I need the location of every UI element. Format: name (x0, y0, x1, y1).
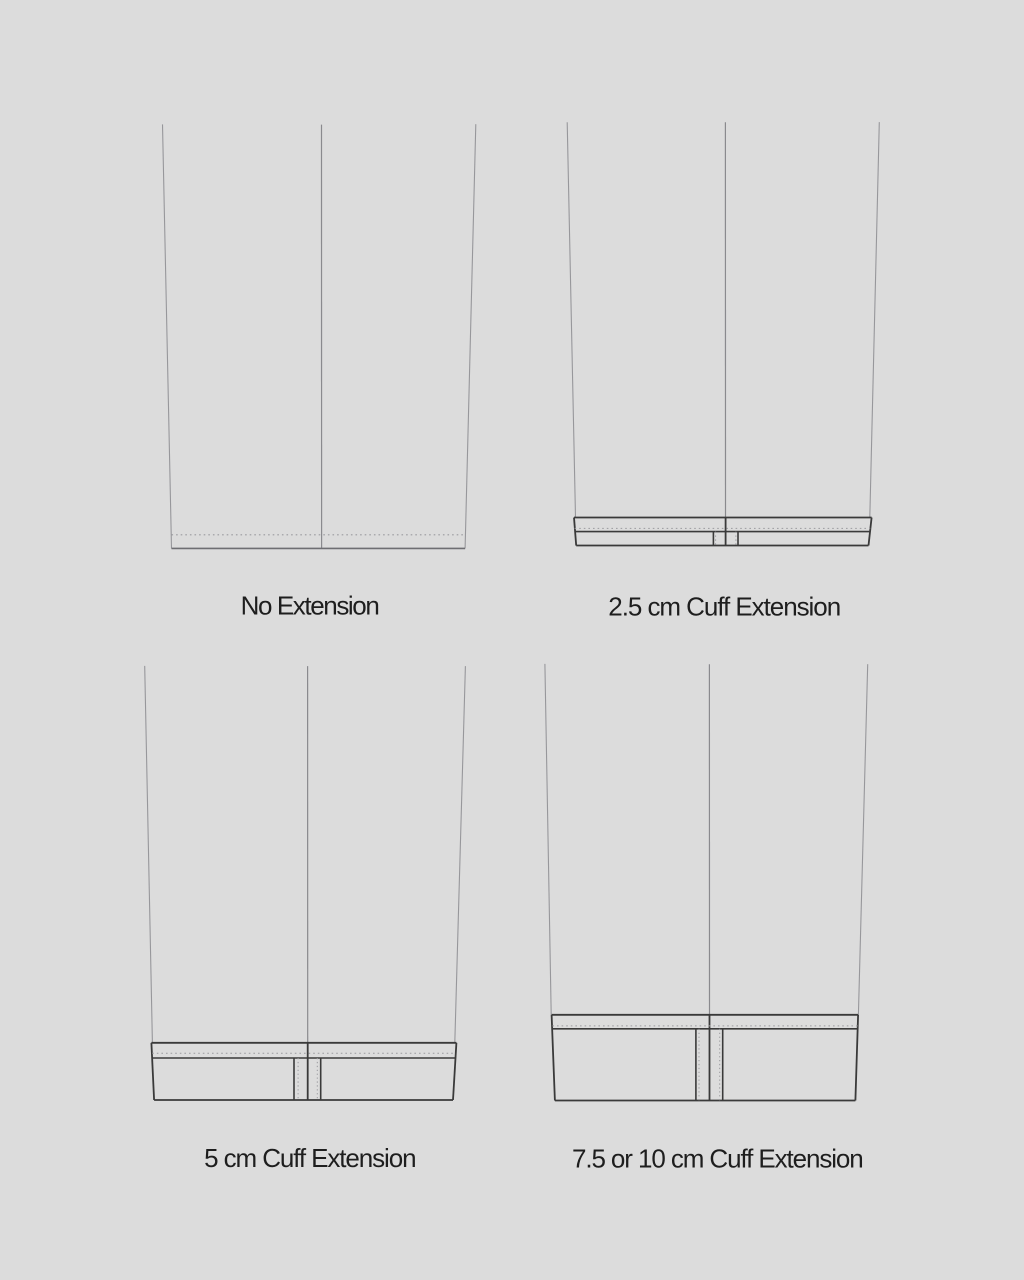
svg-text:5 cm Cuff Extension: 5 cm Cuff Extension (204, 1143, 415, 1173)
svg-text:2.5 cm Cuff Extension: 2.5 cm Cuff Extension (608, 592, 840, 622)
svg-text:7.5 or 10 cm Cuff Extension: 7.5 or 10 cm Cuff Extension (572, 1143, 863, 1173)
svg-text:No Extension: No Extension (241, 591, 379, 621)
